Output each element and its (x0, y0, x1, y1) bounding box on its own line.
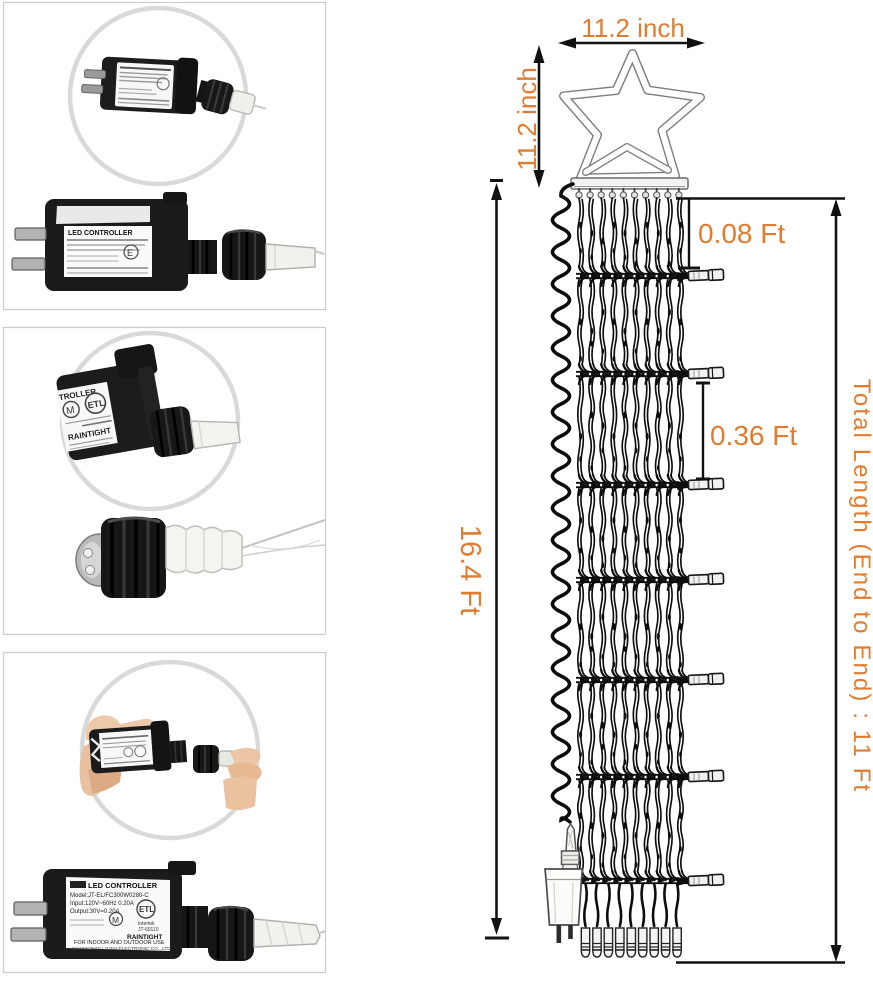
svg-text:M: M (112, 915, 119, 925)
svg-text:Total Length (End to End) : 11: Total Length (End to End) : 11 Ft (848, 379, 873, 793)
svg-text:LED CONTROLLER: LED CONTROLLER (88, 881, 158, 890)
svg-text:LED CONTROLLER: LED CONTROLLER (68, 230, 133, 237)
svg-text:Input:120V~60Hz 0.20A: Input:120V~60Hz 0.20A (70, 901, 134, 907)
svg-text:11.2 inch: 11.2 inch (581, 13, 685, 43)
svg-text:JT-60110: JT-60110 (138, 927, 159, 933)
svg-text:11.2 inch: 11.2 inch (512, 67, 542, 171)
svg-text:CHANGZHOU JUTAI ELECTRONIC CO.: CHANGZHOU JUTAI ELECTRONIC CO., LTD (72, 946, 171, 952)
svg-text:16.4 Ft: 16.4 Ft (454, 525, 486, 615)
svg-text:Model:JT-EL/FC300W0280-C: Model:JT-EL/FC300W0280-C (70, 893, 149, 899)
svg-text:E: E (127, 248, 133, 258)
svg-text:0.08 Ft: 0.08 Ft (698, 218, 785, 249)
svg-text:0.36 Ft: 0.36 Ft (710, 420, 797, 451)
svg-text:FOR INDOOR AND OUTDOOR USE: FOR INDOOR AND OUTDOOR USE (74, 940, 165, 946)
svg-text:ETL: ETL (139, 905, 154, 914)
